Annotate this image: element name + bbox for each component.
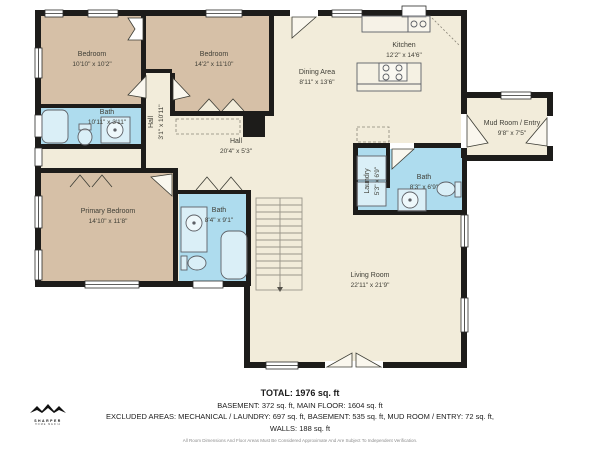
- room-label-bath-1: Bath 10'11" x 3'11": [88, 108, 126, 128]
- room-label-laundry: Laundry 5'3" x 6'9": [363, 167, 383, 195]
- main-areas: BASEMENT: 372 sq. ft, MAIN FLOOR: 1604 s…: [0, 400, 600, 411]
- room-label-primary-bedroom: Primary Bedroom 14'10" x 11'8": [81, 207, 135, 227]
- total-area: TOTAL: 1976 sq. ft: [0, 388, 600, 398]
- brand-tagline: HOME MEDIA: [26, 423, 70, 426]
- excluded-areas: EXCLUDED AREAS: MECHANICAL / LAUNDRY: 69…: [0, 411, 600, 422]
- area-summary: TOTAL: 1976 sq. ft BASEMENT: 372 sq. ft,…: [0, 388, 600, 443]
- walls-area: WALLS: 188 sq. ft: [0, 423, 600, 434]
- room-label-bedroom-1: Bedroom 10'10" x 10'2": [72, 50, 111, 70]
- floor-plan-page: Bedroom 10'10" x 10'2" Bedroom 14'2" x 1…: [0, 0, 600, 450]
- room-label-hall: Hall 20'4" x 5'3": [220, 137, 252, 157]
- room-label-mud-room: Mud Room / Entry 9'8" x 7'5": [484, 119, 540, 139]
- room-label-hall-vertical: Hall 3'1" x 10'11": [147, 104, 167, 139]
- toilet-tank: [455, 182, 461, 197]
- primary-bedroom-floor: [41, 173, 173, 281]
- vent-box: [402, 6, 426, 17]
- room-label-living-room: Living Room 22'11" x 21'9": [351, 271, 390, 291]
- toilet-bowl: [188, 256, 206, 270]
- bathtub: [221, 231, 247, 279]
- mountain-logo-icon: [29, 403, 67, 414]
- kitchen-counter: [362, 16, 408, 32]
- brand-logo: SHARPER HOME MEDIA: [26, 401, 70, 426]
- toilet-tank: [181, 256, 187, 270]
- toilet-bowl: [78, 129, 92, 145]
- disclaimer-text: All Room Dimensions And Floor Areas Must…: [0, 438, 600, 443]
- room-label-dining-area: Dining Area 8'11" x 13'6": [299, 68, 335, 88]
- stairs: [256, 198, 302, 292]
- room-label-bath-2: Bath 8'4" x 9'1": [205, 206, 233, 226]
- bathtub: [42, 110, 68, 143]
- room-label-bath-3: Bath 8'3" x 6'9": [410, 173, 438, 193]
- room-label-kitchen: Kitchen 12'2" x 14'6": [386, 41, 422, 61]
- room-label-bedroom-2: Bedroom 14'2" x 11'10": [195, 50, 234, 70]
- toilet-bowl: [437, 182, 455, 196]
